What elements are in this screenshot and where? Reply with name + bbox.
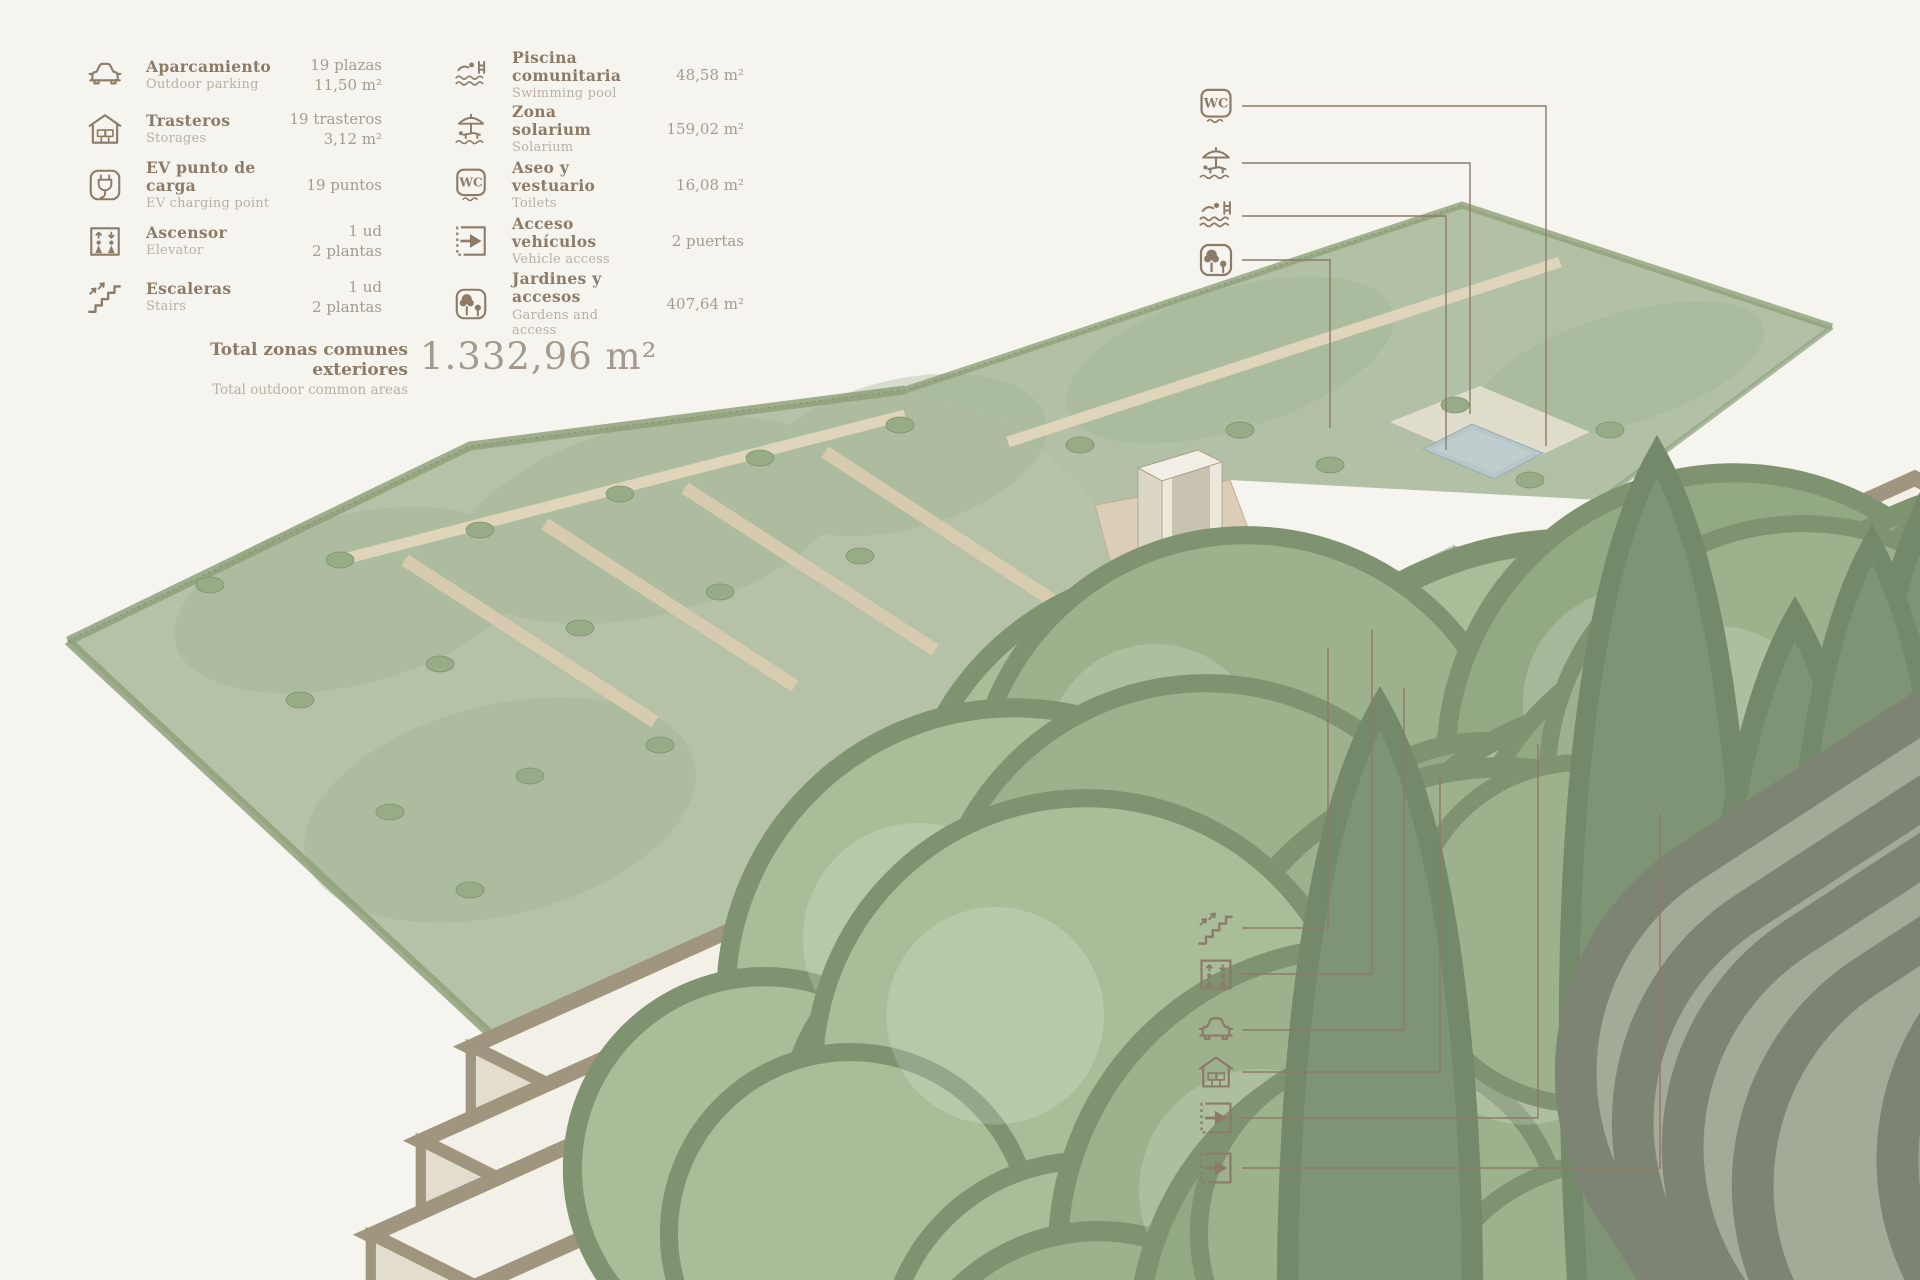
- bush: [1596, 422, 1624, 438]
- bush: [326, 552, 354, 568]
- legend-row-vehicle-access: Acceso vehículos Vehicle access 2 puerta…: [452, 214, 744, 268]
- legend-value: 48,58 m²: [652, 65, 744, 85]
- bush: [846, 548, 874, 564]
- legend: Aparcamiento Outdoor parking 19 plazas 1…: [0, 0, 800, 420]
- masterplan-poster: WC: [0, 0, 1920, 1280]
- legend-row-ev-charging: EV punto de carga EV charging point 19 p…: [86, 158, 382, 212]
- legend-value: 1 ud 2 plantas: [290, 277, 382, 318]
- legend-row-gardens: Jardines y accesos Gardens and access 40…: [452, 270, 744, 324]
- legend-label-es: EV punto de carga: [146, 159, 276, 195]
- wc-icon: [452, 166, 490, 204]
- callout-icons-top-right: [1200, 90, 1231, 275]
- bush: [516, 768, 544, 784]
- legend-row-elevator: Ascensor Elevator 1 ud 2 plantas: [86, 214, 382, 268]
- pool-icon: [1200, 202, 1229, 226]
- legend-label-es: Piscina comunitaria: [512, 49, 638, 85]
- legend-label-en: Solarium: [512, 140, 638, 155]
- total-common-areas: Total zonas comunes exteriores Total out…: [150, 340, 657, 398]
- legend-label-es: Escaleras: [146, 280, 276, 298]
- bush: [646, 737, 674, 753]
- legend-value-line1: 1 ud: [290, 277, 382, 297]
- legend-label-en: Elevator: [146, 243, 276, 258]
- legend-value-line2: 2 plantas: [290, 241, 382, 261]
- storage-icon: [86, 110, 124, 148]
- legend-value-line2: 11,50 m²: [290, 75, 382, 95]
- bush: [456, 882, 484, 898]
- legend-value: 16,08 m²: [652, 175, 744, 195]
- total-label-es: Total zonas comunes exteriores: [150, 340, 408, 380]
- bush: [1441, 397, 1469, 413]
- legend-label-en: Storages: [146, 131, 276, 146]
- legend-label-es: Trasteros: [146, 112, 276, 130]
- legend-value-line1: 16,08 m²: [652, 175, 744, 195]
- car-icon: [86, 56, 124, 94]
- wc-icon: [1202, 90, 1231, 122]
- legend-label-en: Vehicle access: [512, 252, 638, 267]
- legend-value: 2 puertas: [652, 231, 744, 251]
- bush: [1066, 437, 1094, 453]
- bush: [466, 522, 494, 538]
- legend-value: 19 puntos: [290, 175, 382, 195]
- elevator-icon: [86, 222, 124, 260]
- legend-label-es: Acceso vehículos: [512, 215, 638, 251]
- legend-value: 407,64 m²: [652, 294, 744, 314]
- bush: [426, 656, 454, 672]
- bush: [1516, 472, 1544, 488]
- total-label-en: Total outdoor common areas: [150, 382, 408, 398]
- pool-icon: [452, 56, 490, 94]
- legend-label-en: Swimming pool: [512, 86, 638, 101]
- bush: [1226, 422, 1254, 438]
- legend-row-parking: Aparcamiento Outdoor parking 19 plazas 1…: [86, 48, 382, 102]
- legend-value: 1 ud 2 plantas: [290, 221, 382, 262]
- legend-label-en: Outdoor parking: [146, 77, 276, 92]
- legend-value-line2: 3,12 m²: [290, 129, 383, 149]
- bush: [196, 577, 224, 593]
- legend-row-toilets: Aseo y vestuario Toilets 16,08 m²: [452, 158, 744, 212]
- bush: [886, 417, 914, 433]
- legend-label-en: Gardens and access: [512, 308, 638, 338]
- solarium-icon: [452, 110, 490, 148]
- legend-value: 159,02 m²: [652, 119, 744, 139]
- bush: [606, 486, 634, 502]
- legend-label-es: Aseo y vestuario: [512, 159, 638, 195]
- total-value: 1.332,96 m²: [420, 335, 657, 378]
- legend-value-line1: 407,64 m²: [652, 294, 744, 314]
- vehicle-access-icon: [452, 222, 490, 260]
- legend-row-solarium: Zona solarium Solarium 159,02 m²: [452, 102, 744, 156]
- legend-label-es: Ascensor: [146, 224, 276, 242]
- legend-label-en: EV charging point: [146, 196, 276, 211]
- bush: [566, 620, 594, 636]
- legend-row-pool: Piscina comunitaria Swimming pool 48,58 …: [452, 48, 744, 102]
- bush: [376, 804, 404, 820]
- solarium-icon: [1200, 148, 1228, 178]
- legend-value-line2: 2 plantas: [290, 297, 382, 317]
- legend-row-stairs: Escaleras Stairs 1 ud 2 plantas: [86, 270, 382, 324]
- bush: [706, 584, 734, 600]
- legend-row-storage: Trasteros Storages 19 trasteros 3,12 m²: [86, 102, 382, 156]
- legend-value-line1: 19 puntos: [290, 175, 382, 195]
- stairs-icon: [86, 278, 124, 316]
- legend-value-line1: 1 ud: [290, 221, 382, 241]
- legend-value-line1: 19 trasteros: [290, 109, 383, 129]
- legend-value-line1: 19 plazas: [290, 55, 382, 75]
- garden-icon: [452, 285, 490, 323]
- bush: [1316, 457, 1344, 473]
- legend-label-es: Zona solarium: [512, 103, 638, 139]
- legend-value: 19 trasteros 3,12 m²: [290, 109, 383, 150]
- legend-value-line1: 48,58 m²: [652, 65, 744, 85]
- legend-value: 19 plazas 11,50 m²: [290, 55, 382, 96]
- ev-charging-icon: [86, 166, 124, 204]
- bush: [746, 450, 774, 466]
- legend-value-line1: 159,02 m²: [652, 119, 744, 139]
- legend-label-en: Toilets: [512, 196, 638, 211]
- garden-icon: [1201, 245, 1231, 275]
- bush: [286, 692, 314, 708]
- legend-label-es: Jardines y accesos: [512, 270, 638, 306]
- legend-value-line1: 2 puertas: [652, 231, 744, 251]
- legend-label-es: Aparcamiento: [146, 58, 276, 76]
- legend-label-en: Stairs: [146, 299, 276, 314]
